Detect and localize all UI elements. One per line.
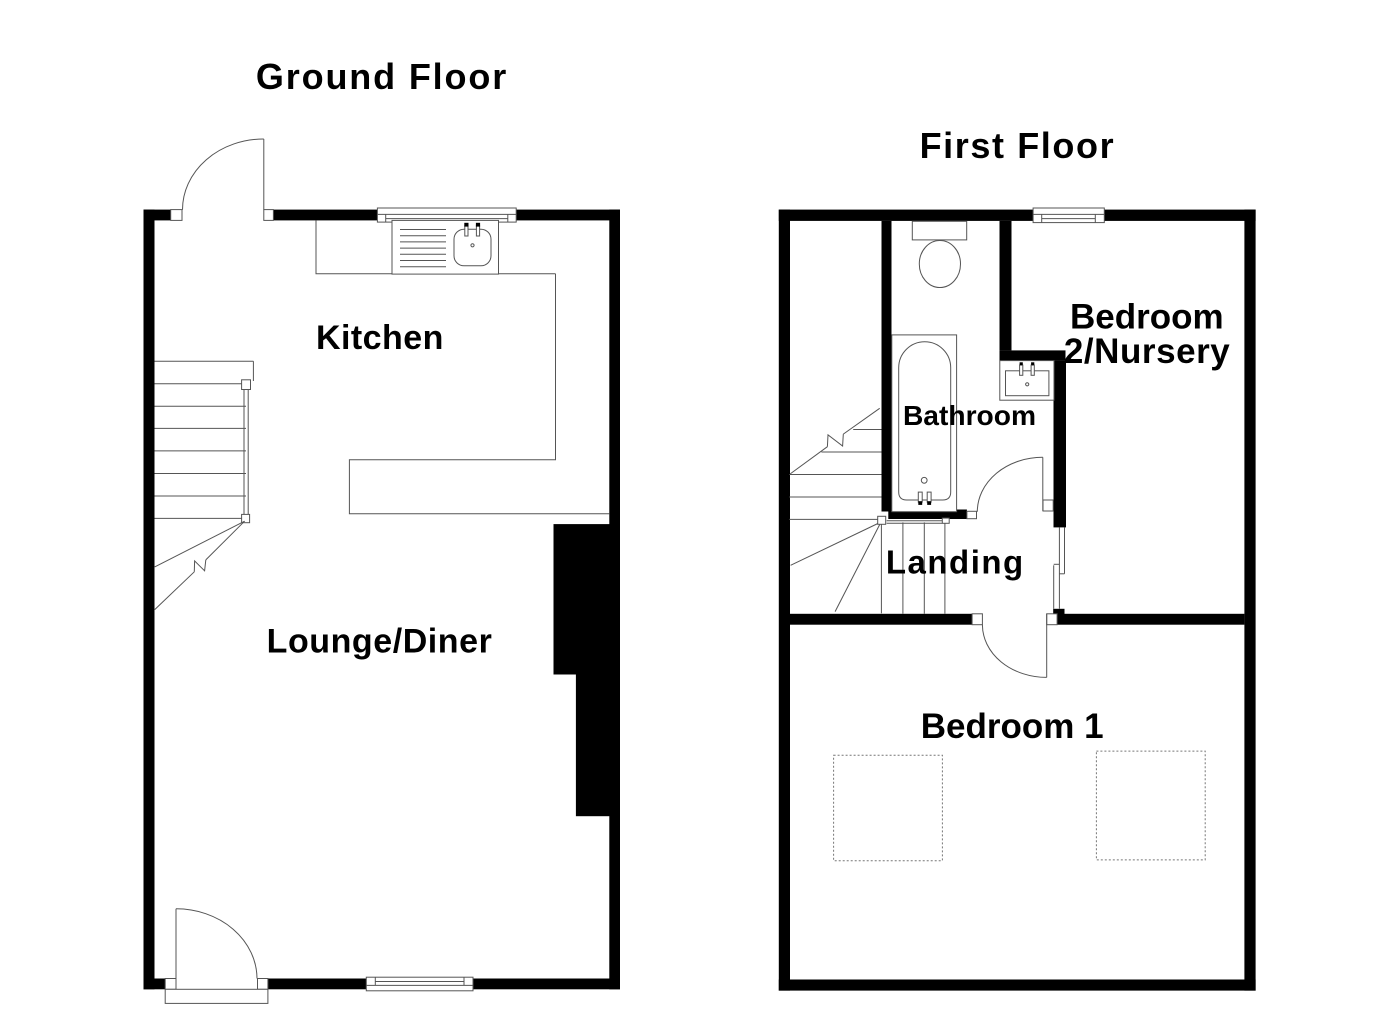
svg-text:Bedroom: Bedroom bbox=[1070, 297, 1224, 336]
svg-text:Ground Floor: Ground Floor bbox=[256, 56, 508, 97]
svg-text:Lounge/Diner: Lounge/Diner bbox=[267, 622, 493, 660]
svg-text:Landing: Landing bbox=[886, 544, 1025, 581]
svg-text:2/Nursery: 2/Nursery bbox=[1064, 332, 1230, 371]
svg-text:Bathroom: Bathroom bbox=[903, 399, 1036, 431]
svg-text:First Floor: First Floor bbox=[920, 125, 1116, 166]
svg-text:Bedroom 1: Bedroom 1 bbox=[921, 707, 1104, 746]
svg-text:Kitchen: Kitchen bbox=[316, 319, 444, 357]
